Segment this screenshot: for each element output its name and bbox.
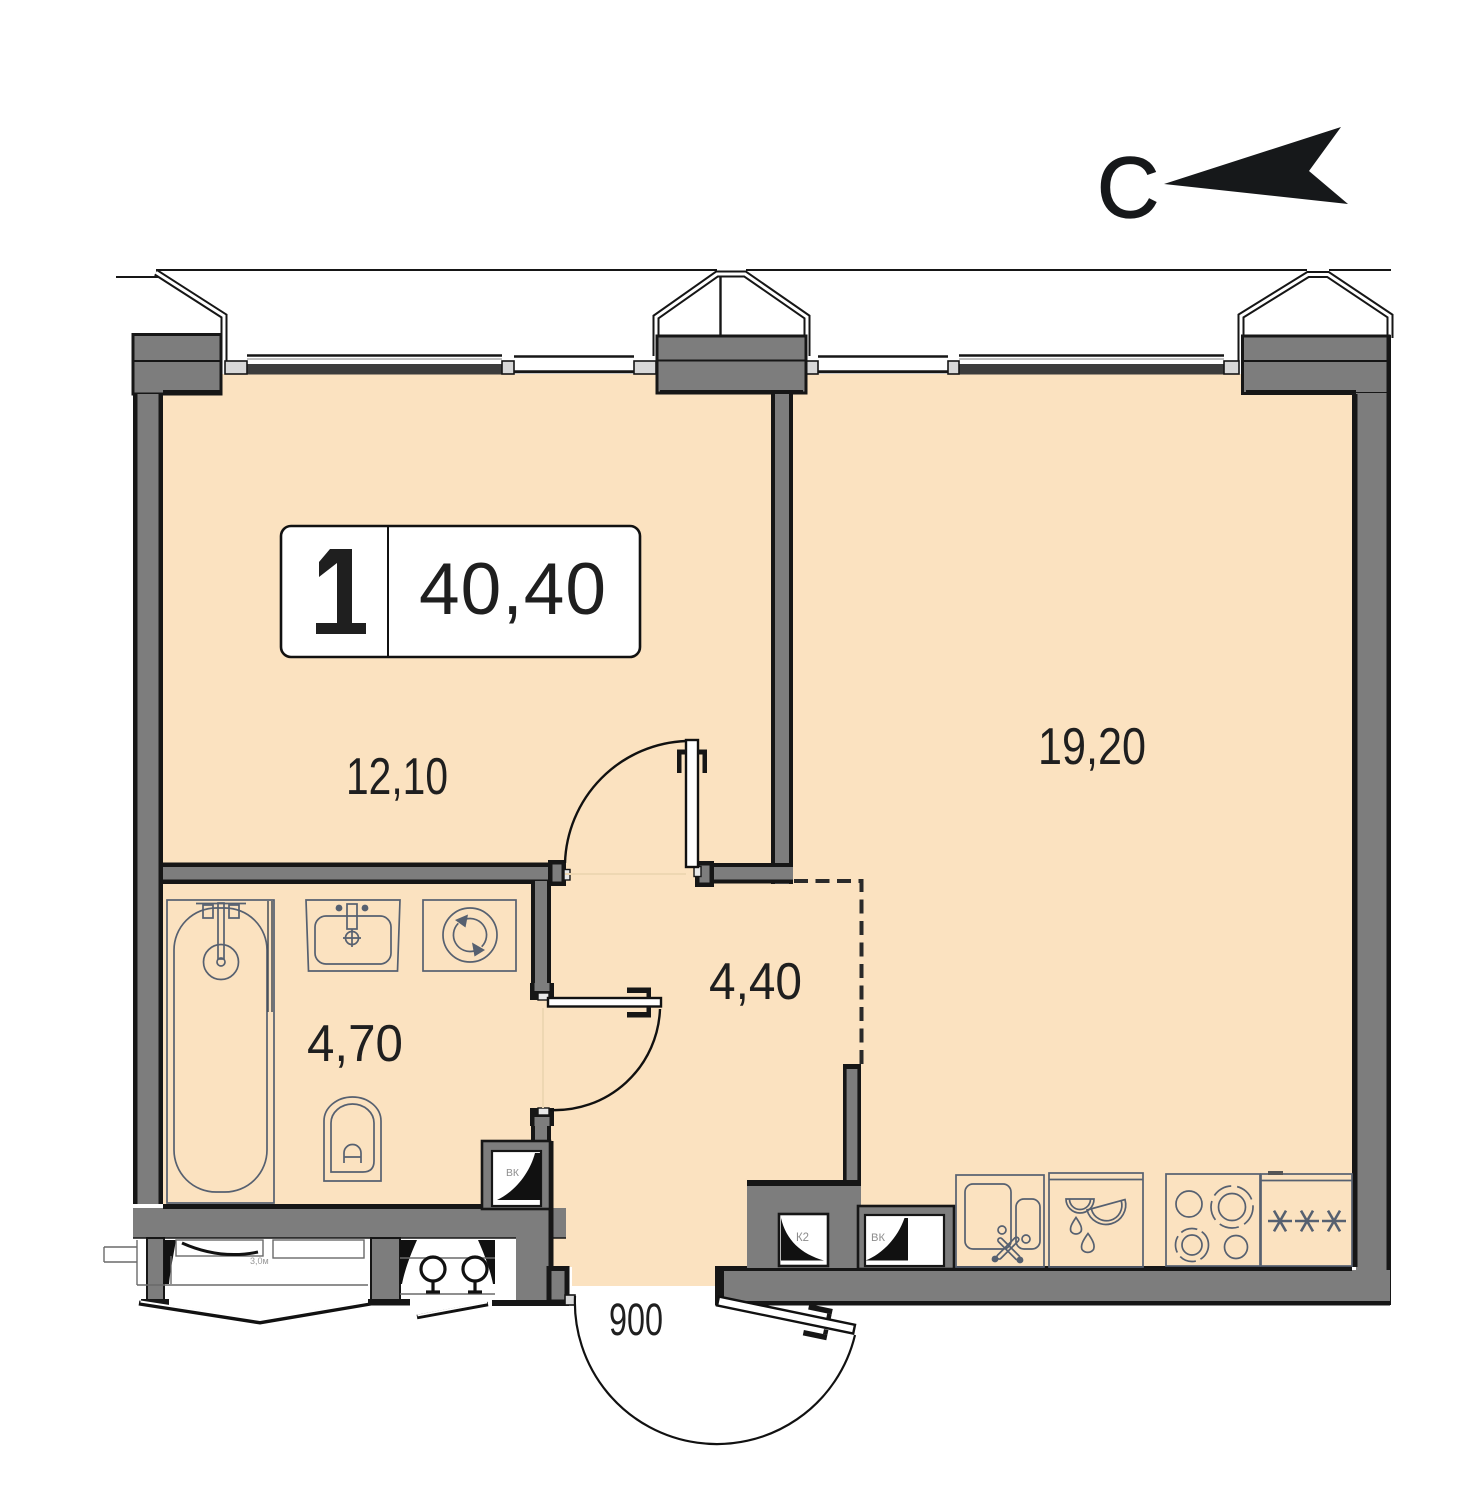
svg-text:40,40: 40,40 bbox=[419, 549, 606, 630]
svg-text:ВК: ВК bbox=[506, 1168, 519, 1179]
svg-text:4,70: 4,70 bbox=[307, 1015, 403, 1073]
svg-text:12,10: 12,10 bbox=[346, 748, 448, 806]
svg-text:4,40: 4,40 bbox=[709, 953, 802, 1011]
svg-text:900: 900 bbox=[609, 1294, 663, 1345]
svg-text:3,0м: 3,0м bbox=[250, 1256, 269, 1266]
svg-text:19,20: 19,20 bbox=[1038, 718, 1146, 776]
svg-text:С: С bbox=[1097, 140, 1159, 236]
svg-text:ВК: ВК bbox=[871, 1232, 886, 1244]
svg-text:К2: К2 bbox=[796, 1230, 809, 1244]
